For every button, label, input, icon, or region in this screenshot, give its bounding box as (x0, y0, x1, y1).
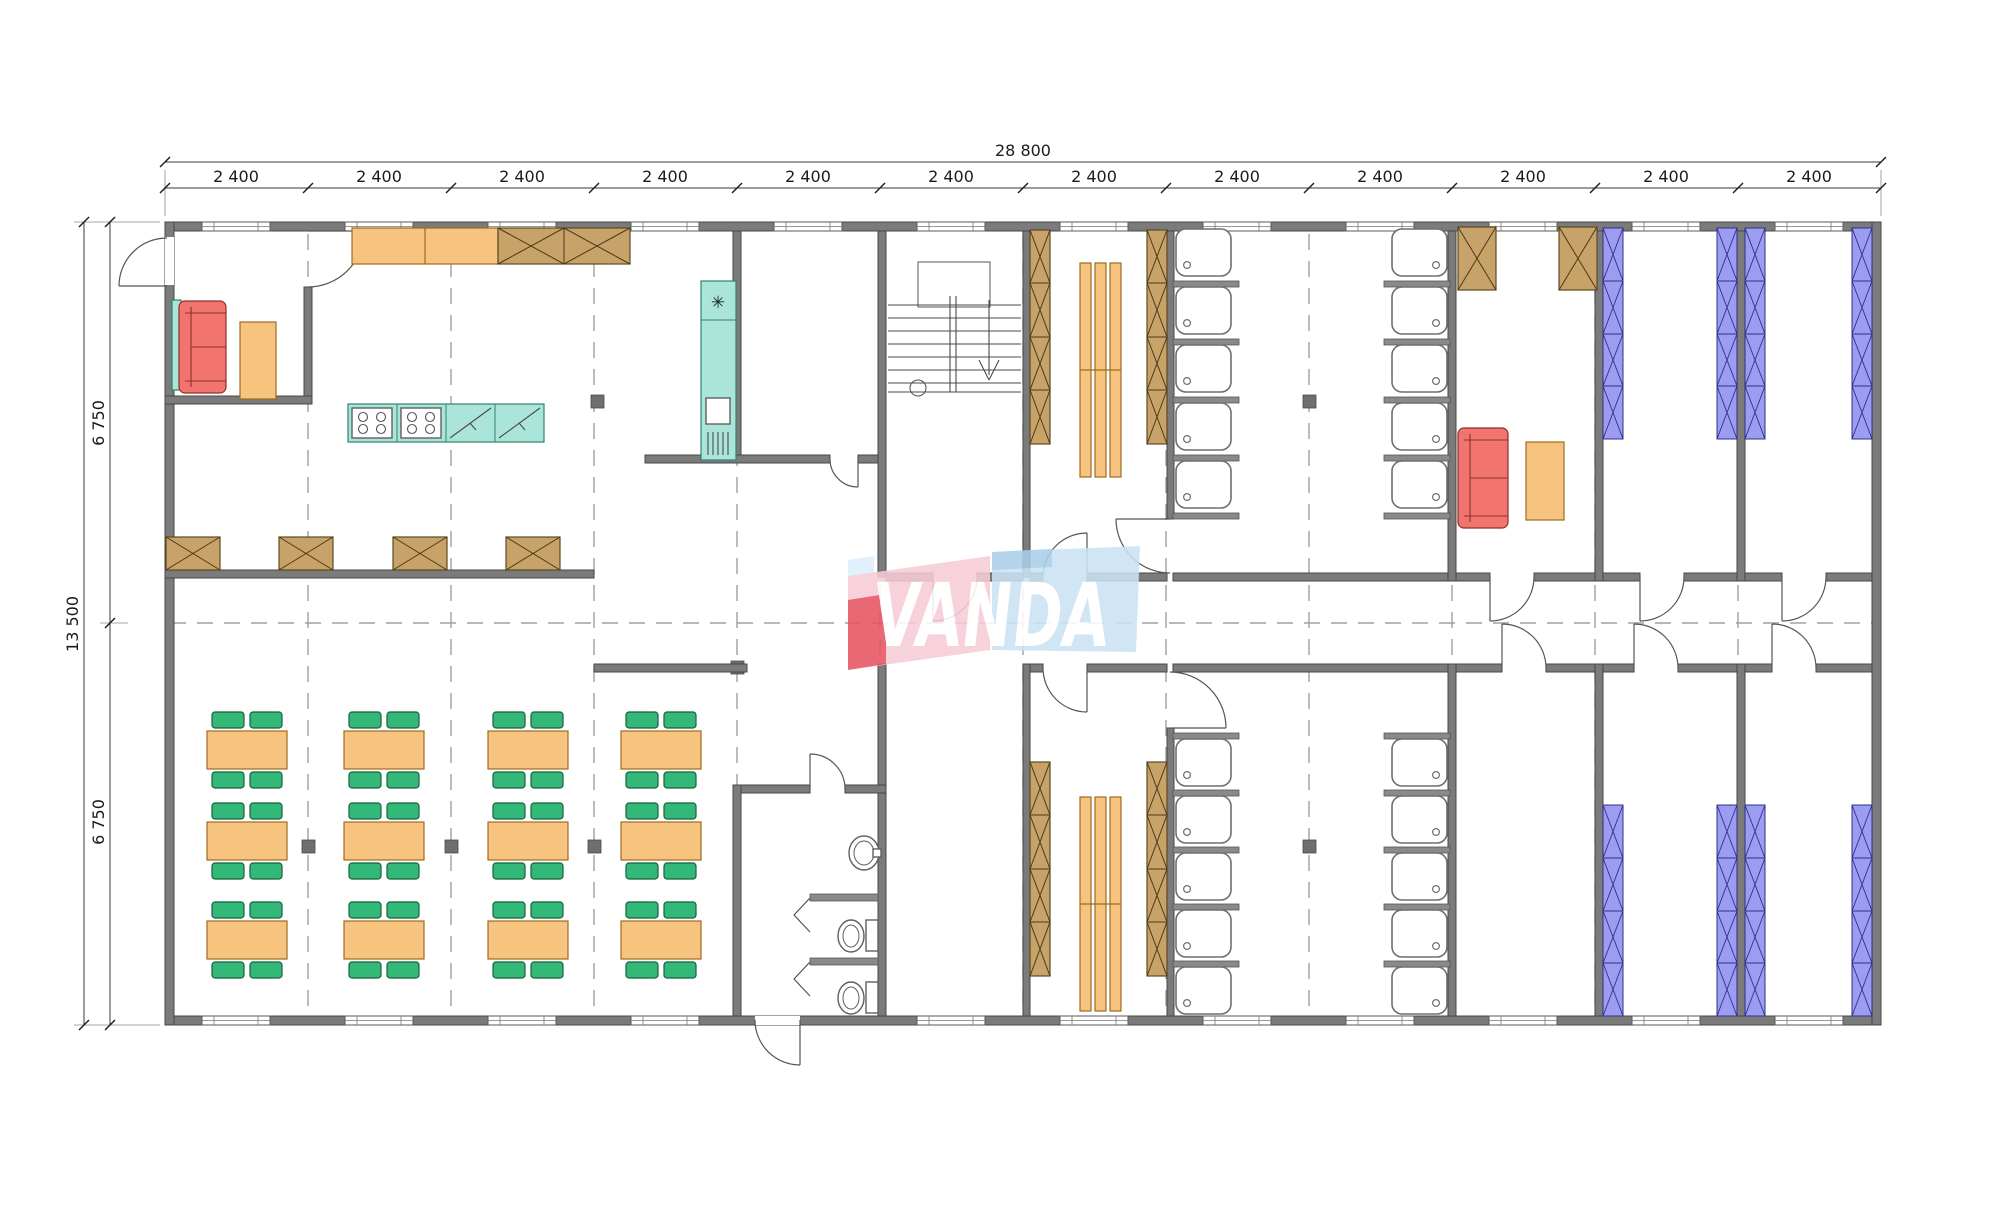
locker-column (1147, 230, 1167, 444)
shower-room-top (1173, 229, 1450, 519)
bay-label: 2 400 (1214, 167, 1260, 186)
fridge-sink-unit: ✳ (701, 281, 736, 460)
bench (1080, 797, 1121, 1011)
bay-label: 2 400 (356, 167, 402, 186)
stove-icon (401, 408, 441, 438)
table (1526, 442, 1564, 520)
toilet-room (838, 836, 881, 1014)
bay-label: 2 400 (1071, 167, 1117, 186)
wardrobe-box (1458, 227, 1496, 290)
dining-set (344, 712, 424, 788)
upper-half-label: 6 750 (89, 400, 108, 446)
shower-stall (1176, 287, 1231, 334)
shower-stall (1392, 739, 1447, 786)
floorplan-drawing: 28 800 2 400 2 400 2 400 2 400 2 400 2 4… (0, 0, 2000, 1216)
shower-stall (1392, 287, 1447, 334)
table (240, 322, 276, 399)
bunk-locker-column (1745, 228, 1765, 439)
shower-stall (1392, 403, 1447, 450)
bunk-locker-column (1717, 228, 1737, 439)
bunk-locker-column (1852, 805, 1872, 1016)
bedrooms-top (1603, 228, 1872, 439)
shower-stall (1176, 967, 1231, 1014)
total-height-label: 13 500 (63, 596, 82, 652)
total-width-label: 28 800 (995, 141, 1051, 160)
dining-set (488, 902, 568, 978)
dining-set (621, 803, 701, 879)
stair-start-marker (910, 380, 926, 396)
shower-room-bottom (1173, 733, 1450, 1014)
shower-stall (1392, 345, 1447, 392)
wardrobe-box (166, 537, 220, 570)
bay-label: 2 400 (642, 167, 688, 186)
shower-stall (1392, 967, 1447, 1014)
bay-label: 2 400 (928, 167, 974, 186)
changing-room-top (1030, 230, 1167, 477)
stairwell (888, 262, 1021, 396)
shower-stall (1392, 796, 1447, 843)
floorplan-canvas: 28 800 2 400 2 400 2 400 2 400 2 400 2 4… (0, 0, 2000, 1216)
wardrobe-box (393, 537, 447, 570)
exterior-wall-bottom (165, 1016, 1881, 1025)
dimension-top-bays: 2 400 2 400 2 400 2 400 2 400 2 400 2 40… (160, 167, 1886, 193)
dimension-top-total: 28 800 (160, 141, 1886, 216)
dimension-left-total: 13 500 (63, 217, 160, 1030)
lounge-room-top-left (172, 300, 276, 399)
locker-column (1030, 230, 1050, 444)
bay-label: 2 400 (1786, 167, 1832, 186)
bunk-locker-column (1852, 228, 1872, 439)
bunk-locker-column (1745, 805, 1765, 1016)
wardrobe-cabinet (498, 228, 630, 264)
bedrooms-bottom (1603, 805, 1872, 1016)
dimension-left-halves: 6 750 6 750 (89, 217, 115, 1030)
shower-stall (1392, 910, 1447, 957)
lower-half-label: 6 750 (89, 799, 108, 845)
exterior-wall-right (1872, 222, 1881, 1025)
shower-stall (1176, 910, 1231, 957)
dining-set (207, 712, 287, 788)
sink-icon (706, 398, 730, 424)
dining-set (207, 803, 287, 879)
stove-icon (352, 408, 392, 438)
shower-stall (1176, 461, 1231, 508)
dining-set (621, 902, 701, 978)
bunk-locker-column (1603, 228, 1623, 439)
vanda-logo: VANDA (848, 546, 1140, 670)
lounge-room-top-right (1458, 227, 1597, 528)
toilet-icon (838, 982, 878, 1014)
shower-stall (1392, 461, 1447, 508)
vanda-logo-text: VANDA (868, 564, 1115, 667)
locker-column (1147, 762, 1167, 976)
dining-set (621, 712, 701, 788)
wardrobe-box (279, 537, 333, 570)
dining-set (344, 902, 424, 978)
bunk-locker-column (1603, 805, 1623, 1016)
dining-set (344, 803, 424, 879)
stairs-down-arrow-icon (979, 300, 999, 380)
shower-stall (1392, 229, 1447, 276)
washbasin-icon (849, 836, 881, 870)
bay-label: 2 400 (499, 167, 545, 186)
locker-column (1030, 762, 1050, 976)
main-entrance-door (755, 1020, 800, 1065)
changing-room-bottom (1030, 762, 1167, 1011)
shower-stall (1176, 403, 1231, 450)
shower-stall (1176, 739, 1231, 786)
wardrobe-box (506, 537, 560, 570)
bay-label: 2 400 (785, 167, 831, 186)
bay-label: 2 400 (1643, 167, 1689, 186)
toilet-icon (838, 920, 878, 952)
fridge-icon: ✳ (711, 293, 725, 313)
shower-stall (1392, 853, 1447, 900)
kitchen-island (348, 404, 544, 442)
bench (1080, 263, 1121, 477)
shower-stall (1176, 345, 1231, 392)
bunk-locker-column (1717, 805, 1737, 1016)
shower-stall (1176, 796, 1231, 843)
shower-stall (1176, 229, 1231, 276)
dining-set (488, 712, 568, 788)
dining-set (488, 803, 568, 879)
sofa (1458, 428, 1508, 528)
bay-label: 2 400 (1357, 167, 1403, 186)
wardrobe-box (1559, 227, 1597, 290)
sofa (179, 301, 226, 393)
dining-set (207, 902, 287, 978)
bay-label: 2 400 (213, 167, 259, 186)
shower-stall (1176, 853, 1231, 900)
bay-label: 2 400 (1500, 167, 1546, 186)
